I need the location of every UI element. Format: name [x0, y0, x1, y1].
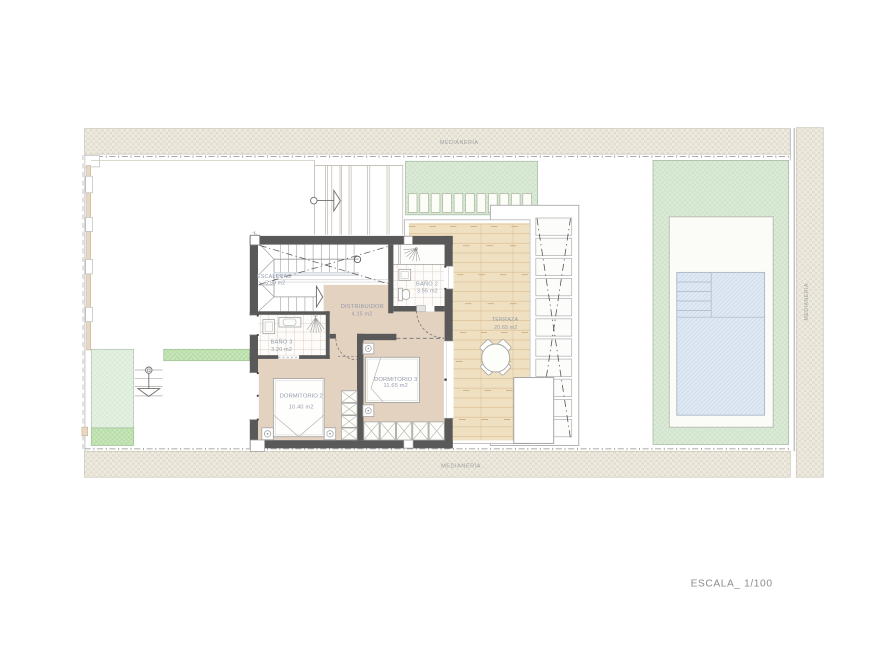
- svg-text:MEDIANERIA: MEDIANERIA: [804, 283, 810, 320]
- svg-text:DORMITORIO 2: DORMITORIO 2: [280, 393, 323, 399]
- svg-text:10.40 m2: 10.40 m2: [289, 405, 314, 411]
- svg-text:BAÑO 3: BAÑO 3: [271, 338, 293, 345]
- svg-text:MEDIANERÍA: MEDIANERÍA: [440, 139, 479, 146]
- svg-text:5.90 m2: 5.90 m2: [265, 281, 285, 287]
- svg-text:3.55 m2: 3.55 m2: [417, 289, 438, 295]
- svg-text:11.65 m2: 11.65 m2: [383, 383, 408, 389]
- svg-text:ESCALERAS: ESCALERAS: [257, 274, 291, 280]
- svg-text:TERRAZA: TERRAZA: [492, 317, 519, 323]
- svg-text:DISTRIBUIDOR: DISTRIBUIDOR: [341, 304, 384, 310]
- svg-text:BAÑO 2: BAÑO 2: [416, 281, 438, 288]
- svg-text:3.20 m2: 3.20 m2: [271, 347, 292, 353]
- svg-text:4.15 m2: 4.15 m2: [352, 311, 373, 317]
- svg-text:20.65 m2: 20.65 m2: [494, 325, 517, 331]
- svg-text:ESCALA_ 1/100: ESCALA_ 1/100: [691, 579, 773, 590]
- svg-text:DORMITORIO 3: DORMITORIO 3: [374, 377, 418, 383]
- svg-text:MEDIANERÍA: MEDIANERÍA: [441, 463, 481, 470]
